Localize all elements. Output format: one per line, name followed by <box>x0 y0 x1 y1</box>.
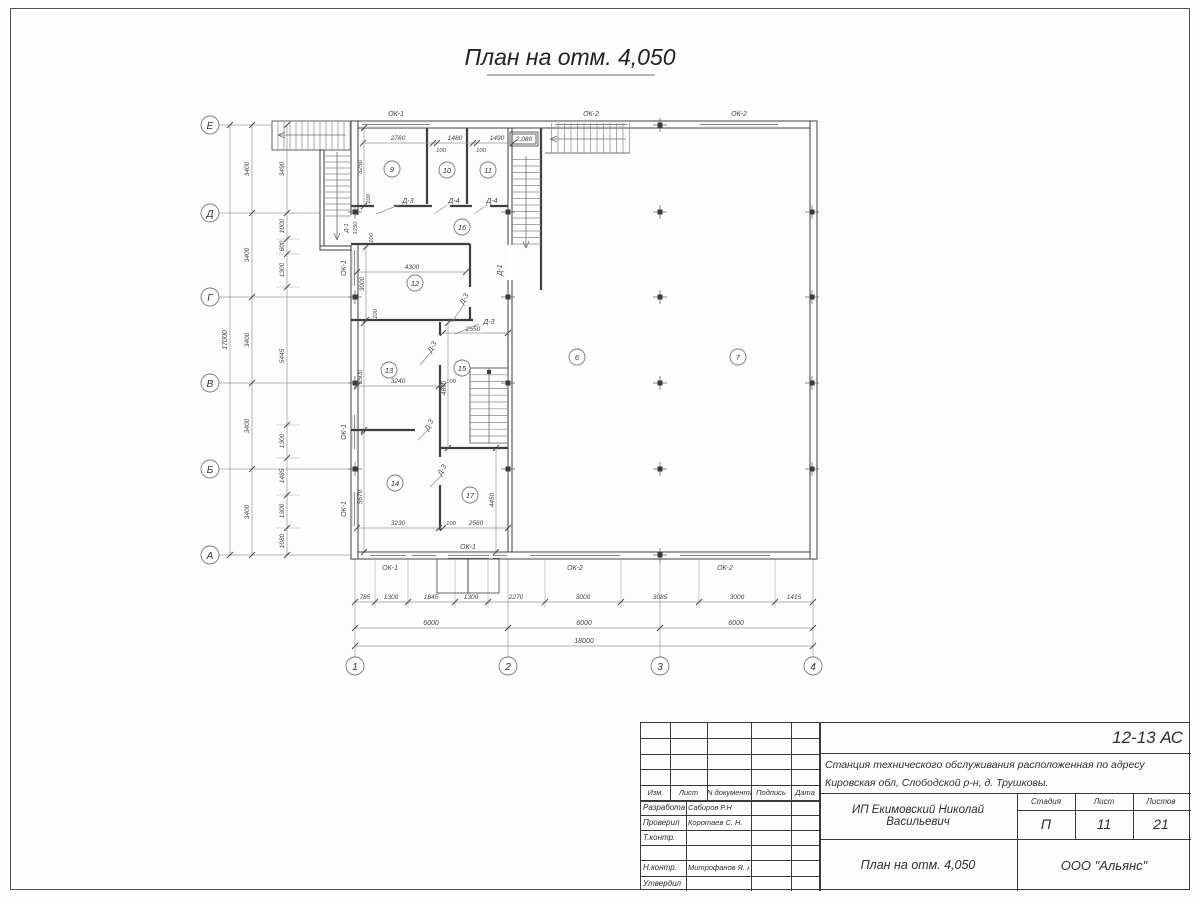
title-block: 12-13 АС Станция технического обслуживан… <box>640 722 1190 890</box>
sheet-number: 11 <box>1075 810 1133 839</box>
dim-label: 1000 <box>279 218 286 233</box>
tb-role: Разработал <box>643 800 685 815</box>
dim-label: 1300 <box>279 433 286 448</box>
tb-name: Коротаев С. Н. <box>688 815 749 830</box>
window-label: ОК-1 <box>341 260 348 276</box>
sheet-label: Лист <box>1075 793 1133 810</box>
interior-partitions <box>351 128 508 530</box>
door-label: Д-3 <box>436 464 448 478</box>
axis-label: Б <box>207 465 214 476</box>
tb-name <box>688 830 749 845</box>
door-label: Д-3 <box>458 293 470 307</box>
room-number: 11 <box>484 166 492 175</box>
dim-label: 100 <box>369 232 375 242</box>
vestibule <box>437 559 499 593</box>
room-number: 10 <box>443 166 452 175</box>
dim-label: 3500 <box>357 369 364 384</box>
tb-role: Проверил <box>643 815 685 830</box>
exterior-walls <box>351 121 817 559</box>
axis-label: 1 <box>352 662 358 673</box>
door-openings <box>350 215 513 280</box>
col-sign: Подпись <box>751 785 791 800</box>
axis-label: Е <box>207 121 214 132</box>
door-label: Д-3 <box>401 198 413 205</box>
tb-role <box>643 845 685 860</box>
door-label: Д-3 <box>426 341 438 355</box>
dim-label: 18000 <box>574 638 594 645</box>
dim-label: 100 <box>373 308 379 318</box>
level-value: 2,080 <box>515 136 533 143</box>
window-label: ОК-2 <box>731 111 747 118</box>
tb-name: Митрофанов Я. А. <box>688 860 749 876</box>
door-label: Д-4 <box>485 198 497 205</box>
room-number: 13 <box>385 366 394 375</box>
axis-label: 2 <box>504 662 511 673</box>
dim-label: 4300 <box>405 264 420 271</box>
dim-label: 1300 <box>464 594 479 601</box>
column-markers <box>348 118 819 562</box>
tb-name <box>688 845 749 860</box>
page-title: План на отм. 4,050 <box>464 44 675 70</box>
plan-drawing: План на отм. 4,050 785 1300 184 <box>0 0 1200 718</box>
window-labels: ОК-1 ОК-2 ОК-2 ОК-1 ОК-1 ОК-2 ОК-2 ОК-1 … <box>341 111 747 572</box>
room-number: 14 <box>391 479 399 488</box>
room-number: 12 <box>411 279 420 288</box>
company-name: ООО "Альянс" <box>1019 841 1189 889</box>
level-mark: 2,080 <box>510 132 538 146</box>
window-label: ОК-2 <box>717 565 733 572</box>
dim-label: 785 <box>360 594 371 601</box>
dim-label: 1415 <box>787 594 802 601</box>
dim-label: 3085 <box>653 594 668 601</box>
dim-label: 1485 <box>279 468 286 483</box>
dim-label: 6000 <box>728 620 744 627</box>
dim-label: 100 <box>436 148 446 154</box>
tb-line <box>751 723 752 891</box>
room15-stair <box>470 368 508 443</box>
door-label: Д-3 <box>423 419 435 433</box>
door-label: Д-3 <box>482 319 494 326</box>
window-label: ОК-2 <box>567 565 583 572</box>
tb-line <box>819 753 1191 754</box>
axis-label: Д <box>205 209 213 220</box>
dim-label: 3000 <box>359 276 366 291</box>
door-label: Д-4 <box>447 198 459 205</box>
dim-label: 2550 <box>465 326 481 333</box>
window-label: ОК-1 <box>388 111 404 118</box>
dim-label: 4890 <box>441 380 448 395</box>
dim-label: 1845 <box>424 594 439 601</box>
tb-line <box>641 738 819 739</box>
window-label: ОК-1 <box>341 424 348 440</box>
left-dim-chains: 17000 3400 3400 3400 3400 3400 3490 1000… <box>222 122 300 558</box>
tb-name: Сабиров Р.Н <box>688 800 749 815</box>
dim-label: 3230 <box>391 520 406 527</box>
project-name-line1: Станция технического обслуживания распол… <box>825 756 1187 774</box>
dim-label: 3400 <box>244 504 251 519</box>
room-number: 16 <box>458 223 467 232</box>
dim-label: 3400 <box>244 247 251 262</box>
axis-label: 3 <box>657 662 663 673</box>
tb-role: Н.контр. <box>643 860 685 876</box>
door-label: Д-1 <box>344 223 350 233</box>
dim-label: 2560 <box>468 520 484 527</box>
axis-label: В <box>207 379 214 390</box>
sheet-title: План на отм. 4,050 <box>821 841 1015 889</box>
axis-label: 4 <box>810 662 816 673</box>
tb-line <box>791 723 792 891</box>
tb-role: Т.контр. <box>643 830 685 845</box>
tb-line <box>819 839 1191 840</box>
doc-code: 12-13 АС <box>825 725 1183 751</box>
sheets-total: 21 <box>1133 810 1189 839</box>
door-label: Д-1 <box>497 264 504 276</box>
col-izm: Изм. <box>641 785 670 800</box>
dim-label: 1480 <box>448 135 463 142</box>
dim-label: 3490 <box>279 161 286 176</box>
col-ndoc: N документа <box>707 785 751 800</box>
interior-dimensions: 2760 100 1480 100 1490 3250 100 Д-1 1250… <box>344 125 516 555</box>
axis-label: А <box>206 551 214 562</box>
dim-label: 4450 <box>489 492 496 507</box>
dim-label: 3240 <box>391 378 406 385</box>
dim-label: 6000 <box>423 620 439 627</box>
dim-label: 3400 <box>244 161 251 176</box>
dim-label: 3000 <box>730 594 745 601</box>
annex-stair <box>320 150 351 250</box>
stairwell <box>512 128 541 290</box>
project-name-line2: Кировская обл, Слободской р-н, д. Трушко… <box>825 774 1187 792</box>
dim-label: 17000 <box>222 330 229 350</box>
window-label: ОК-1 <box>341 501 348 517</box>
window-label: ОК-1 <box>460 544 476 551</box>
col-list: Лист <box>670 785 707 800</box>
dim-label: 600 <box>279 240 286 251</box>
stage-label: Стадия <box>1017 793 1075 810</box>
dim-label: 100 <box>476 148 486 154</box>
dim-label: 3400 <box>244 332 251 347</box>
tb-line <box>641 754 819 755</box>
window-label: ОК-1 <box>382 565 398 572</box>
sheets-label: Листов <box>1133 793 1189 810</box>
dim-label: 5670 <box>357 489 364 504</box>
dim-label: 1250 <box>353 221 359 235</box>
dim-label: 2760 <box>390 135 406 142</box>
room-number: 15 <box>458 364 467 373</box>
dim-label: 1490 <box>490 135 505 142</box>
dim-label: 6000 <box>576 620 592 627</box>
col-date: Дата <box>791 785 819 800</box>
client-name: ИП Екимовский Николай Васильевич <box>821 795 1015 837</box>
tb-name <box>688 876 749 891</box>
dim-label: 1300 <box>384 594 399 601</box>
windows <box>351 121 778 559</box>
room-numbers: 6 7 9 10 11 12 13 14 15 16 17 <box>381 161 746 503</box>
dim-label: 3250 <box>357 159 364 174</box>
window-label: ОК-2 <box>583 111 599 118</box>
drawing-sheet: План на отм. 4,050 785 1300 184 <box>0 0 1200 900</box>
stage-value: П <box>1017 810 1075 839</box>
dim-label: 100 <box>366 193 372 203</box>
room-number: 17 <box>466 491 475 500</box>
tb-role: Утвердил <box>643 876 685 891</box>
dim-label: 1080 <box>279 533 286 548</box>
exterior-stair <box>272 121 351 150</box>
dim-label: 3400 <box>244 418 251 433</box>
bottom-dim-chains: 785 1300 1845 1300 2270 3000 3085 3000 1… <box>352 560 816 649</box>
dim-label: 5445 <box>279 348 286 363</box>
dim-label: 100 <box>446 521 456 527</box>
dim-label: 1300 <box>279 503 286 518</box>
dim-label: 2270 <box>508 594 524 601</box>
dim-label: 3000 <box>576 594 591 601</box>
dim-label: 1300 <box>279 262 286 277</box>
tb-line <box>641 769 819 770</box>
